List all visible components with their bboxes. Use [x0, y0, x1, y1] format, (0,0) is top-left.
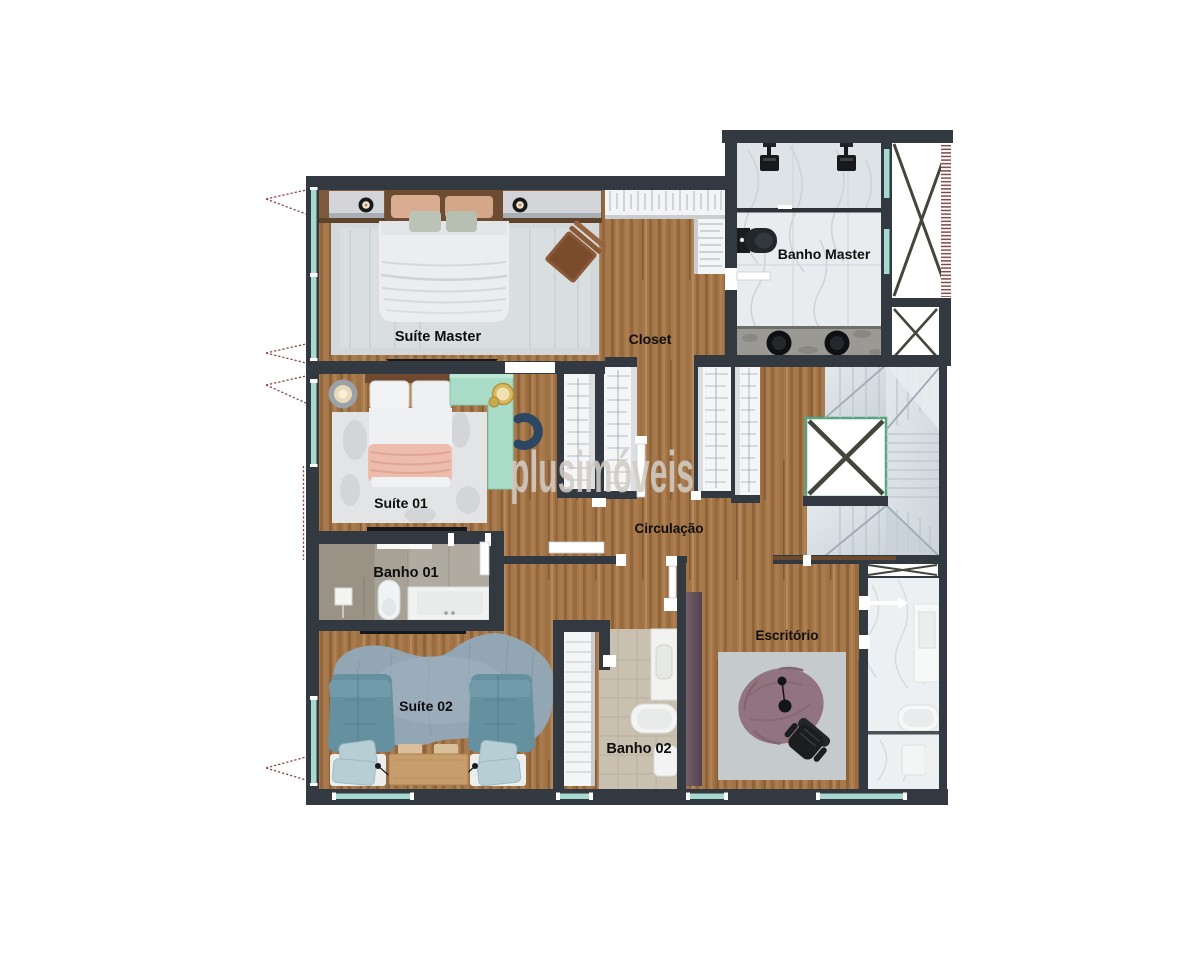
svg-text:Suíte Master: Suíte Master — [395, 329, 482, 345]
svg-text:Suíte 01: Suíte 01 — [374, 495, 428, 511]
svg-text:Banho 02: Banho 02 — [606, 741, 671, 757]
svg-text:Banho Master: Banho Master — [778, 246, 871, 262]
svg-text:Suíte 02: Suíte 02 — [399, 698, 453, 714]
svg-text:Closet: Closet — [629, 331, 672, 347]
svg-text:plusimóveis: plusimóveis — [510, 440, 694, 505]
svg-text:Banho 01: Banho 01 — [373, 565, 438, 581]
svg-text:Escritório: Escritório — [755, 628, 818, 643]
svg-text:Circulação: Circulação — [634, 521, 703, 536]
